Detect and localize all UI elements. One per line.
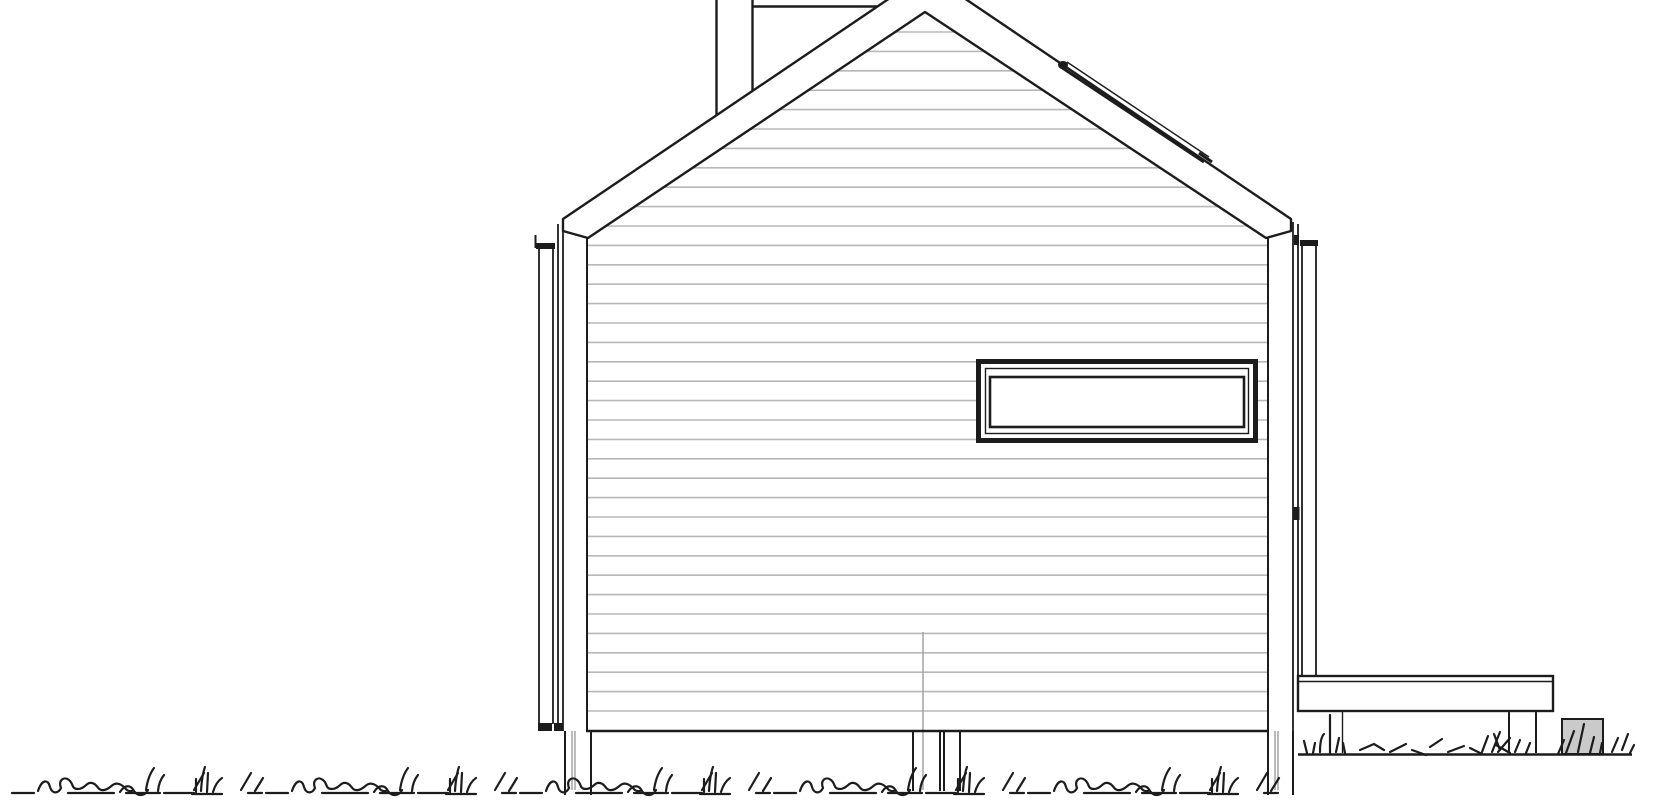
elevation-drawing-canvas bbox=[0, 0, 1670, 800]
right-trim-hardware-mark bbox=[1294, 507, 1300, 520]
deck bbox=[1298, 676, 1553, 753]
left-corner-trim bbox=[536, 219, 564, 731]
roof-fascia-band bbox=[563, 0, 1291, 238]
foundation-post-center bbox=[913, 731, 960, 791]
left-trim-top-cap bbox=[536, 243, 555, 249]
wall-outline bbox=[586, 238, 1269, 731]
ribbon-window bbox=[979, 362, 1256, 441]
foundation-post-right bbox=[1268, 731, 1293, 795]
grass-foreground bbox=[12, 767, 1279, 795]
left-trim-bottom-cap bbox=[538, 723, 552, 731]
right-eave-tip-mark bbox=[1294, 235, 1299, 245]
right-trim-top-cap bbox=[1300, 240, 1318, 246]
right-corner-trim bbox=[1293, 222, 1318, 731]
skylight-top-cap bbox=[1058, 61, 1068, 69]
